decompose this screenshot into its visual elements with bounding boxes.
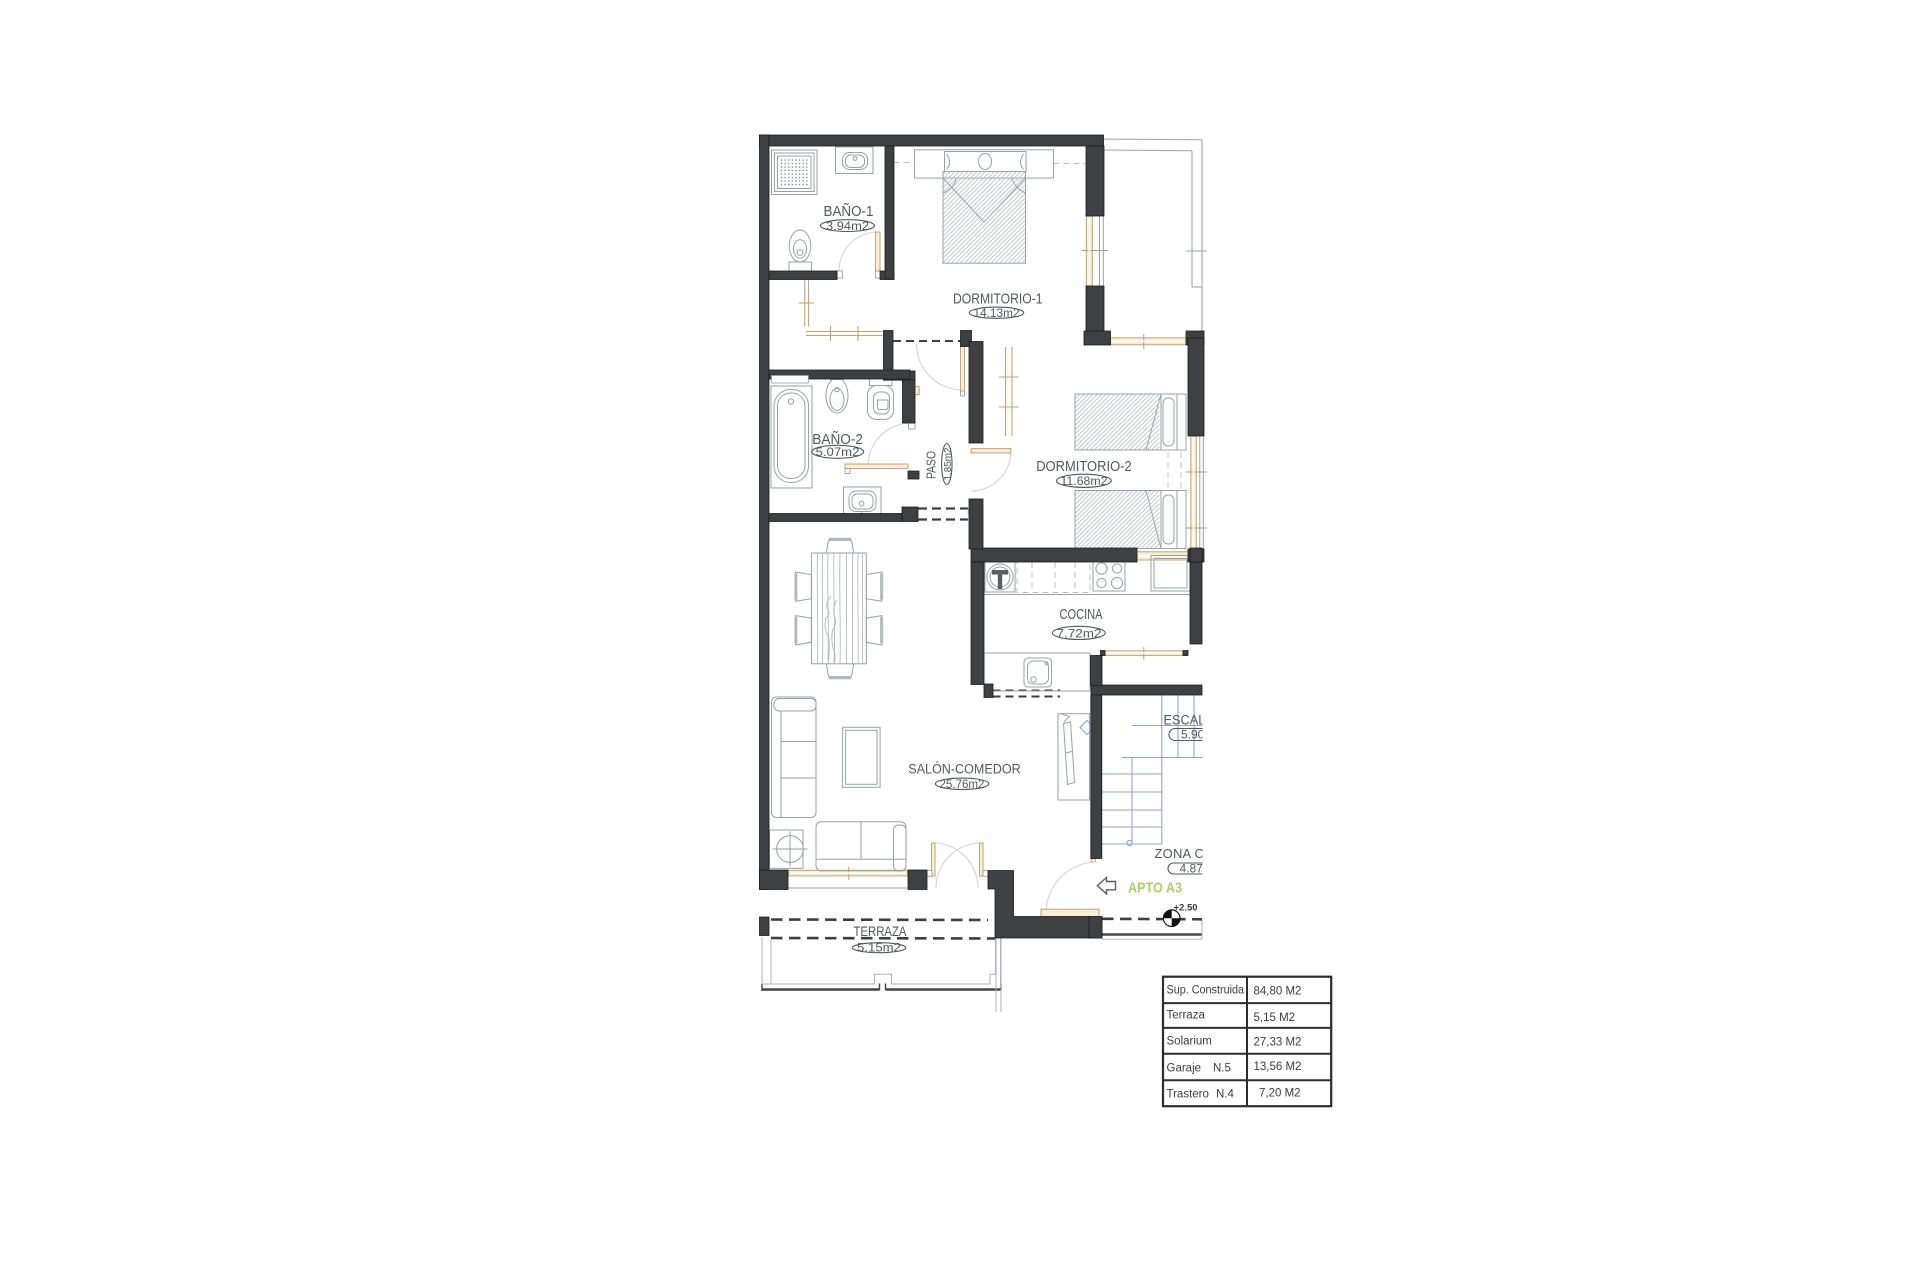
svg-text:14.13m2: 14.13m2 — [974, 306, 1020, 320]
svg-text:SALÓN-COMEDOR: SALÓN-COMEDOR — [908, 762, 1021, 777]
svg-text:APTO A3: APTO A3 — [1128, 879, 1182, 896]
svg-text:1.85m2: 1.85m2 — [942, 447, 954, 480]
svg-text:25.76m2: 25.76m2 — [940, 777, 985, 791]
svg-text:7.72m2: 7.72m2 — [1057, 626, 1102, 640]
svg-text:3.94m2: 3.94m2 — [826, 219, 869, 233]
svg-text:COCINA: COCINA — [1060, 606, 1103, 623]
svg-text:7,20 M2: 7,20 M2 — [1259, 1088, 1301, 1100]
svg-text:Sup. Construida: Sup. Construida — [1167, 985, 1245, 997]
svg-text:DORMITORIO-2: DORMITORIO-2 — [1036, 458, 1132, 475]
svg-text:13,56 M2: 13,56 M2 — [1254, 1061, 1302, 1073]
svg-text:PASO: PASO — [925, 451, 939, 479]
svg-text:5.90m2: 5.90m2 — [1181, 728, 1221, 742]
svg-text:Trastero: Trastero — [1167, 1089, 1209, 1101]
svg-text:ESCALERA: ESCALERA — [1164, 712, 1232, 727]
svg-text:Terraza: Terraza — [1167, 1010, 1206, 1022]
svg-text:4.87m2: 4.87m2 — [1180, 862, 1220, 876]
svg-text:27,33 M2: 27,33 M2 — [1254, 1037, 1302, 1049]
svg-text:ZONA COMÚN: ZONA COMÚN — [1155, 846, 1245, 861]
svg-text:Solarium: Solarium — [1167, 1036, 1212, 1048]
svg-text:Garaje: Garaje — [1167, 1063, 1202, 1075]
svg-text:5.07m2: 5.07m2 — [816, 445, 860, 459]
svg-text:TERRAZA: TERRAZA — [854, 924, 907, 939]
svg-text:84,80 M2: 84,80 M2 — [1254, 986, 1302, 998]
svg-text:BAÑO-1: BAÑO-1 — [824, 203, 874, 220]
svg-text:N.4: N.4 — [1216, 1089, 1235, 1101]
svg-text:5.15m2: 5.15m2 — [857, 941, 901, 955]
svg-text:N.5: N.5 — [1213, 1063, 1231, 1075]
svg-text:11.68m2: 11.68m2 — [1061, 474, 1108, 488]
svg-text:5,15 M2: 5,15 M2 — [1254, 1012, 1296, 1024]
